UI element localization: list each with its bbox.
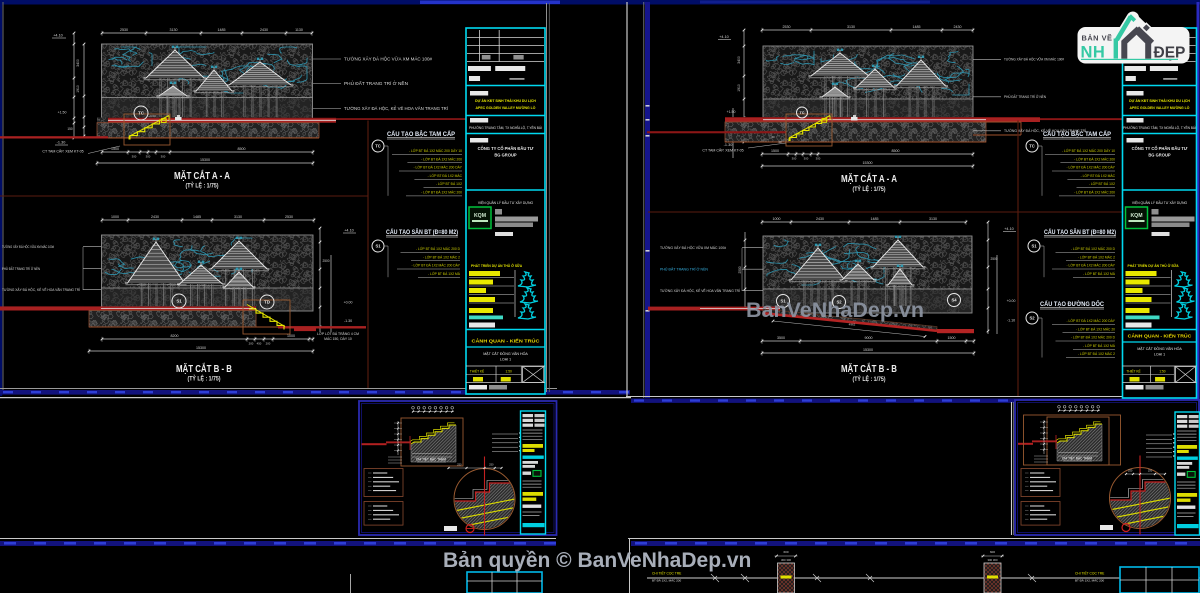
svg-text:+4.10: +4.10 [719, 35, 729, 39]
svg-text:1:50: 1:50 [506, 370, 512, 374]
svg-text:- LỚP BT ĐÁ 1X2 MÁC 200: - LỚP BT ĐÁ 1X2 MÁC 200 [1074, 156, 1115, 161]
svg-text:600: 600 [990, 550, 995, 554]
svg-text:CẤU TẠO SÂN BT (Đ=80 M2): CẤU TẠO SÂN BT (Đ=80 M2) [1044, 229, 1116, 236]
svg-text:15300: 15300 [863, 161, 873, 165]
svg-text:TC: TC [138, 111, 145, 116]
svg-text:- LỚP BT ĐÁ 1X2 MÁC: - LỚP BT ĐÁ 1X2 MÁC [428, 173, 463, 178]
svg-text:2430: 2430 [151, 215, 159, 219]
svg-text:300: 300 [146, 155, 151, 159]
svg-text:1000: 1000 [773, 217, 781, 221]
svg-text:- LỚP BT ĐÁ 1X2 MÁC 200 DÀY 10: - LỚP BT ĐÁ 1X2 MÁC 200 DÀY 10 [1062, 148, 1115, 153]
svg-text:CHI TIẾT BẬC THỀM: CHI TIẾT BẬC THỀM [1062, 456, 1092, 461]
svg-text:250: 250 [489, 463, 494, 467]
svg-text:PHỦ ĐẤT TRANG TRÍ Ở NỀN: PHỦ ĐẤT TRANG TRÍ Ở NỀN [1004, 94, 1046, 99]
svg-text:+0.00: +0.00 [148, 114, 156, 118]
svg-text:- LỚP BT ĐÁ 1X2 MÁC 200 DÀY: - LỚP BT ĐÁ 1X2 MÁC 200 DÀY [1066, 318, 1115, 323]
svg-text:PHÁT TRIỂN DỰ ÁN THỦ Ở SỮA: PHÁT TRIỂN DỰ ÁN THỦ Ở SỮA [1128, 263, 1180, 268]
svg-text:2500: 2500 [738, 266, 742, 273]
svg-text:2430: 2430 [954, 25, 962, 29]
svg-text:2430: 2430 [816, 217, 824, 221]
svg-text:(TỶ LỆ : 1/75): (TỶ LỆ : 1/75) [186, 182, 219, 190]
svg-text:15300: 15300 [863, 348, 873, 352]
svg-text:250: 250 [1128, 469, 1133, 473]
svg-text:MẶT CẮT B - B: MẶT CẮT B - B [841, 362, 897, 375]
svg-text:S1: S1 [176, 299, 182, 304]
svg-text:MÁC 150, DÀY 10: MÁC 150, DÀY 10 [324, 337, 352, 341]
svg-text:-1.30: -1.30 [724, 143, 733, 147]
svg-text:-1.10: -1.10 [1007, 319, 1015, 323]
svg-text:-1.30: -1.30 [344, 319, 352, 323]
svg-text:LOẠI 1: LOẠI 1 [500, 358, 511, 362]
svg-text:- LỚP BT ĐÁ 1X2 MÁC 200: - LỚP BT ĐÁ 1X2 MÁC 200 [1074, 190, 1115, 195]
svg-text:APEC GOLDEN VALLEY MƯỜNG LÒ: APEC GOLDEN VALLEY MƯỜNG LÒ [476, 105, 536, 110]
svg-text:TƯỜNG XÂY ĐÁ HỘC, KẺ VẼ HOA VĂ: TƯỜNG XÂY ĐÁ HỘC, KẺ VẼ HOA VĂN TRANG TR… [344, 106, 449, 111]
svg-text:3130: 3130 [234, 215, 242, 219]
svg-text:CÔNG TY CỔ PHẦN ĐẦU TƯ: CÔNG TY CỔ PHẦN ĐẦU TƯ [478, 146, 534, 151]
svg-text:40: 40 [771, 135, 775, 139]
svg-text:DỰ ÁN KĐT SINH THÁI KHU DU LỊC: DỰ ÁN KĐT SINH THÁI KHU DU LỊCH [1129, 98, 1190, 103]
svg-text:-1.30: -1.30 [57, 141, 66, 145]
svg-text:600: 600 [783, 550, 788, 554]
svg-text:TC: TC [375, 144, 381, 149]
svg-text:- LỚP BT ĐÁ 1X2 MÁC 20: - LỚP BT ĐÁ 1X2 MÁC 20 [1076, 326, 1115, 331]
svg-text:BẢN VẼ: BẢN VẼ [1082, 34, 1113, 43]
svg-text:1910: 1910 [76, 85, 80, 93]
svg-text:LỚP LÓT ĐÁ TRẮNG 4 CM: LỚP LÓT ĐÁ TRẮNG 4 CM [317, 331, 359, 336]
svg-text:TƯỜNG XÂY ĐÁ HỘC, KẺ VẼ HOA VĂ: TƯỜNG XÂY ĐÁ HỘC, KẺ VẼ HOA VĂN TRANG TR… [660, 288, 741, 293]
svg-text:+4.10: +4.10 [344, 229, 354, 233]
svg-text:TƯỜNG XÂY ĐÁ HỘC VỮA XM MÁC 10: TƯỜNG XÂY ĐÁ HỘC VỮA XM MÁC 100# [344, 56, 433, 61]
svg-text:THIẾT KẾ: THIẾT KẾ [470, 369, 484, 374]
svg-text:- LỚP BT ĐÁ 1X2 MÁC 200 DÀY: - LỚP BT ĐÁ 1X2 MÁC 200 DÀY [1066, 263, 1115, 268]
svg-text:TC: TC [799, 111, 804, 115]
svg-text:CÔNG TY CỔ PHẦN ĐẦU TƯ: CÔNG TY CỔ PHẦN ĐẦU TƯ [1132, 146, 1188, 151]
svg-text:- LỚP BT ĐÁ 1X2 MÁC 200 D: - LỚP BT ĐÁ 1X2 MÁC 200 D [1071, 335, 1116, 340]
svg-text:- LỚP BT ĐÁ 1X2 MÁC 200 DÀY: - LỚP BT ĐÁ 1X2 MÁC 200 DÀY [1066, 165, 1115, 170]
svg-text:PHỦ ĐẤT TRANG TRÍ Ở NỀN: PHỦ ĐẤT TRANG TRÍ Ở NỀN [660, 267, 708, 272]
svg-text:THIẾT KẾ: THIẾT KẾ [1126, 369, 1140, 374]
svg-text:9000: 9000 [865, 336, 873, 340]
svg-text:1500: 1500 [771, 149, 779, 153]
svg-text:BT ĐÁ 1X2, MÁC 200: BT ĐÁ 1X2, MÁC 200 [652, 579, 681, 583]
svg-text:250: 250 [457, 463, 462, 467]
svg-text:PHÁT TRIỂN DỰ ÁN THỦ Ở SỮA: PHÁT TRIỂN DỰ ÁN THỦ Ở SỮA [471, 263, 523, 268]
svg-text:1130: 1130 [295, 28, 303, 32]
svg-text:3130: 3130 [170, 28, 178, 32]
svg-text:TƯỜNG XÂY ĐÁ HỘC VỮA XM MÁC 10: TƯỜNG XÂY ĐÁ HỘC VỮA XM MÁC 100# [2, 244, 54, 249]
svg-text:PHỦ ĐẤT TRANG TRÍ Ở NỀN: PHỦ ĐẤT TRANG TRÍ Ở NỀN [344, 81, 408, 86]
svg-text:250: 250 [1148, 469, 1153, 473]
svg-text:- LỚP BT ĐÁ 1X2: - LỚP BT ĐÁ 1X2 [436, 181, 462, 186]
svg-text:1485: 1485 [193, 215, 201, 219]
svg-text:- LỚP BT ĐÁ 1X2: - LỚP BT ĐÁ 1X2 [1089, 181, 1115, 186]
svg-text:+0.00: +0.00 [344, 301, 353, 305]
svg-text:15300: 15300 [196, 346, 206, 350]
svg-text:2500: 2500 [990, 257, 997, 261]
svg-text:1485: 1485 [913, 25, 921, 29]
svg-text:- LỚP BT ĐÁ 1X2 MÁC: - LỚP BT ĐÁ 1X2 MÁC [1081, 173, 1116, 178]
svg-text:CT TAM CẤP. XEM KT-05: CT TAM CẤP. XEM KT-05 [42, 150, 83, 154]
svg-text:KQM: KQM [474, 213, 486, 219]
svg-text:CT TAM CẤP. XEM KT-05: CT TAM CẤP. XEM KT-05 [702, 149, 743, 153]
svg-text:TD: TD [264, 300, 270, 305]
svg-text:+0.00: +0.00 [1007, 299, 1016, 303]
svg-text:3400: 3400 [76, 59, 80, 67]
svg-text:2530: 2530 [285, 215, 293, 219]
svg-text:- LỚP BT ĐÁ 1X2 MÁC 200 DÀY 10: - LỚP BT ĐÁ 1X2 MÁC 200 DÀY 10 [409, 148, 462, 153]
svg-text:- LỚP BT ĐÁ 1X2 MÁ: - LỚP BT ĐÁ 1X2 MÁ [1083, 343, 1116, 348]
svg-text:KQM: KQM [1130, 213, 1142, 219]
svg-text:S2: S2 [1029, 316, 1035, 321]
svg-text:BT ĐÁ 1X2, MÁC 200: BT ĐÁ 1X2, MÁC 200 [1075, 579, 1104, 583]
svg-text:8500: 8500 [238, 147, 246, 151]
svg-text:(TỶ LỆ : 1/75): (TỶ LỆ : 1/75) [188, 375, 221, 383]
svg-text:BG GROUP: BG GROUP [494, 153, 517, 158]
svg-text:15300: 15300 [200, 158, 210, 162]
svg-text:MẶT CẮT A - A: MẶT CẮT A - A [174, 169, 230, 182]
svg-text:2530: 2530 [783, 25, 791, 29]
svg-text:APEC GOLDEN VALLEY MƯỜNG LÒ: APEC GOLDEN VALLEY MƯỜNG LÒ [1130, 105, 1190, 110]
svg-text:VIỆN QUẢN LÝ ĐẦU TƯ XÂY DỰNG: VIỆN QUẢN LÝ ĐẦU TƯ XÂY DỰNG [1132, 200, 1188, 205]
svg-text:CHI TIẾT BẬC THỀM: CHI TIẾT BẬC THỀM [416, 457, 446, 462]
svg-text:- LỚP BT ĐÁ 1X2 MÁC 2: - LỚP BT ĐÁ 1X2 MÁC 2 [1078, 351, 1115, 356]
svg-text:TƯỜNG XÂY ĐÁ HỘC, KẺ VẼ HOA VĂ: TƯỜNG XÂY ĐÁ HỘC, KẺ VẼ HOA VĂN TRANG TR… [2, 287, 80, 292]
svg-text:+4.10: +4.10 [1004, 227, 1014, 231]
svg-text:+1.50: +1.50 [727, 110, 736, 114]
svg-text:3400: 3400 [737, 56, 741, 64]
svg-text:CẤU TẠO ĐƯỜNG DỐC: CẤU TẠO ĐƯỜNG DỐC [1040, 300, 1105, 308]
svg-text:LOẠI 1: LOẠI 1 [1154, 353, 1165, 357]
svg-text:150: 150 [67, 127, 73, 131]
svg-text:CẢNH QUAN - KIẾN TRÚC: CẢNH QUAN - KIẾN TRÚC [1128, 333, 1192, 339]
svg-text:300: 300 [816, 157, 821, 161]
svg-text:450: 450 [257, 342, 262, 346]
svg-text:CẤU TẠO BẬC TAM CẤP: CẤU TẠO BẬC TAM CẤP [387, 131, 455, 138]
svg-text:- LỚP BT ĐÁ 1X2 MÁC 2: - LỚP BT ĐÁ 1X2 MÁC 2 [1078, 254, 1115, 259]
svg-text:1000: 1000 [287, 334, 295, 338]
svg-text:CHI TIẾT CỌC TRE: CHI TIẾT CỌC TRE [1075, 571, 1105, 576]
svg-text:TƯỜNG XÂY ĐÁ HỘC VỮA XM MÁC 10: TƯỜNG XÂY ĐÁ HỘC VỮA XM MÁC 100# [660, 245, 727, 250]
svg-text:S4: S4 [951, 298, 957, 303]
svg-text:3130: 3130 [929, 217, 937, 221]
svg-text:VIỆN QUẢN LÝ ĐẦU TƯ XÂY DỰNG: VIỆN QUẢN LÝ ĐẦU TƯ XÂY DỰNG [478, 200, 534, 205]
svg-text:DỰ ÁN KĐT SINH THÁI KHU DU LỊC: DỰ ÁN KĐT SINH THÁI KHU DU LỊCH [475, 98, 536, 103]
svg-text:300: 300 [132, 155, 137, 159]
svg-text:(TỶ LỆ : 1/75): (TỶ LỆ : 1/75) [853, 375, 886, 383]
svg-text:TƯỜNG XÂY ĐÁ HỘC VỮA XM MÁC 10: TƯỜNG XÂY ĐÁ HỘC VỮA XM MÁC 100# [1004, 57, 1065, 62]
svg-text:1500: 1500 [948, 336, 956, 340]
svg-text:4962: 4962 [849, 323, 856, 327]
svg-text:300 300: 300 300 [781, 558, 792, 562]
svg-text:2430: 2430 [260, 28, 268, 32]
svg-text:- LỚP BT ĐÁ 1X2 MÁC 200 DÀY: - LỚP BT ĐÁ 1X2 MÁC 200 DÀY [411, 263, 460, 268]
svg-text:- LỚP BT ĐÁ 1X2 MÁ: - LỚP BT ĐÁ 1X2 MÁ [1083, 271, 1116, 276]
svg-text:- LỚP BT ĐÁ 1X2 MÁC 200: - LỚP BT ĐÁ 1X2 MÁC 200 [421, 190, 462, 195]
svg-text:- LỚP BT ĐÁ 1X2 MÁC 200 D: - LỚP BT ĐÁ 1X2 MÁC 200 D [1071, 246, 1116, 251]
svg-text:- LỚP BT ĐÁ 1X2 MÁC 2: - LỚP BT ĐÁ 1X2 MÁC 2 [423, 254, 460, 259]
svg-text:1485: 1485 [218, 28, 226, 32]
svg-text:1000: 1000 [111, 215, 119, 219]
svg-text:MẶT CẮT A - A: MẶT CẮT A - A [841, 172, 897, 185]
svg-text:200: 200 [266, 342, 271, 346]
svg-text:+4.10: +4.10 [53, 34, 63, 38]
svg-text:8200: 8200 [171, 334, 179, 338]
svg-text:- LỚP BT ĐÁ 1X2 MÁ: - LỚP BT ĐÁ 1X2 MÁ [428, 271, 461, 276]
svg-text:(TỶ LỆ : 1/75): (TỶ LỆ : 1/75) [853, 185, 886, 193]
svg-text:- LỚP BT ĐÁ 1X2 MÁC 200 DÀY: - LỚP BT ĐÁ 1X2 MÁC 200 DÀY [413, 165, 462, 170]
svg-text:CẢNH QUAN - KIẾN TRÚC: CẢNH QUAN - KIẾN TRÚC [472, 338, 541, 344]
svg-text:TC: TC [1029, 144, 1035, 149]
svg-text:CẤU TẠO BẬC TAM CẤP: CẤU TẠO BẬC TAM CẤP [1043, 131, 1111, 138]
svg-text:PHƯỜNG TRUNG TÂM, TX NGHĨA LỘ,: PHƯỜNG TRUNG TÂM, TX NGHĨA LỘ, T.YÊN BÁI [1123, 125, 1196, 130]
svg-text:MẶT CẮT B - B: MẶT CẮT B - B [176, 362, 232, 375]
svg-text:2500: 2500 [322, 259, 329, 263]
svg-text:200: 200 [249, 342, 254, 346]
svg-text:MẶT CẮT ĐỒNG VĂN HÓA: MẶT CẮT ĐỒNG VĂN HÓA [1137, 346, 1182, 351]
svg-text:MẶT CẮT ĐỒNG VĂN HÓA: MẶT CẮT ĐỒNG VĂN HÓA [483, 351, 528, 356]
svg-text:- LỚP BT ĐÁ 1X2 MÁC 200: - LỚP BT ĐÁ 1X2 MÁC 200 [421, 156, 462, 161]
svg-text:1:50: 1:50 [1159, 370, 1165, 374]
svg-text:300: 300 [792, 157, 797, 161]
svg-text:CẤU TẠO SÂN BT (Đ=80 M2): CẤU TẠO SÂN BT (Đ=80 M2) [386, 229, 458, 236]
svg-text:BG GROUP: BG GROUP [1148, 153, 1171, 158]
svg-text:3500: 3500 [777, 336, 785, 340]
svg-text:1910: 1910 [737, 84, 741, 92]
svg-text:300: 300 [804, 157, 809, 161]
svg-text:300 300: 300 300 [987, 558, 998, 562]
svg-text:PHỦ ĐẤT TRANG TRÍ Ở NỀN: PHỦ ĐẤT TRANG TRÍ Ở NỀN [2, 266, 40, 271]
svg-text:PHƯỜNG TRUNG TÂM, TX NGHĨA LỘ,: PHƯỜNG TRUNG TÂM, TX NGHĨA LỘ, T.YÊN BÁI [469, 125, 542, 130]
svg-text:8500: 8500 [892, 149, 900, 153]
svg-text:+1.50: +1.50 [58, 111, 67, 115]
svg-text:2530: 2530 [120, 28, 128, 32]
svg-text:S1: S1 [1031, 244, 1037, 249]
svg-text:3130: 3130 [847, 25, 855, 29]
svg-text:- LỚP BT ĐÁ 1X2 MÁC 200 D: - LỚP BT ĐÁ 1X2 MÁC 200 D [416, 246, 461, 251]
svg-text:300: 300 [161, 155, 166, 159]
svg-text:1485: 1485 [871, 217, 879, 221]
svg-text:S1: S1 [375, 244, 381, 249]
